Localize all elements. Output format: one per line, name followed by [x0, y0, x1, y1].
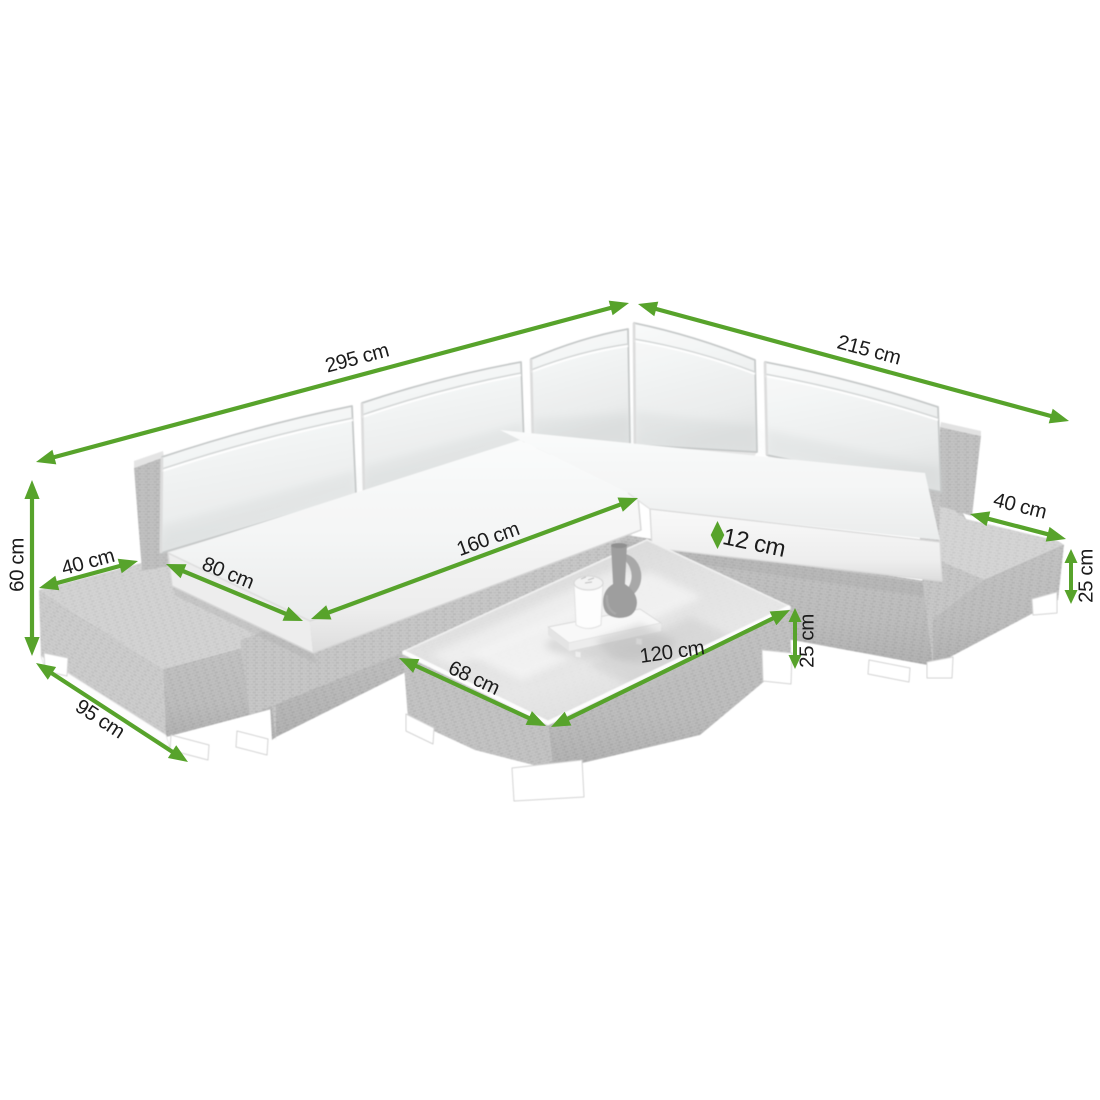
svg-text:25 cm: 25 cm	[796, 614, 819, 668]
svg-text:215 cm: 215 cm	[835, 331, 904, 370]
svg-text:40 cm: 40 cm	[991, 488, 1049, 523]
svg-text:25 cm: 25 cm	[1075, 549, 1098, 603]
svg-text:60 cm: 60 cm	[6, 538, 29, 592]
